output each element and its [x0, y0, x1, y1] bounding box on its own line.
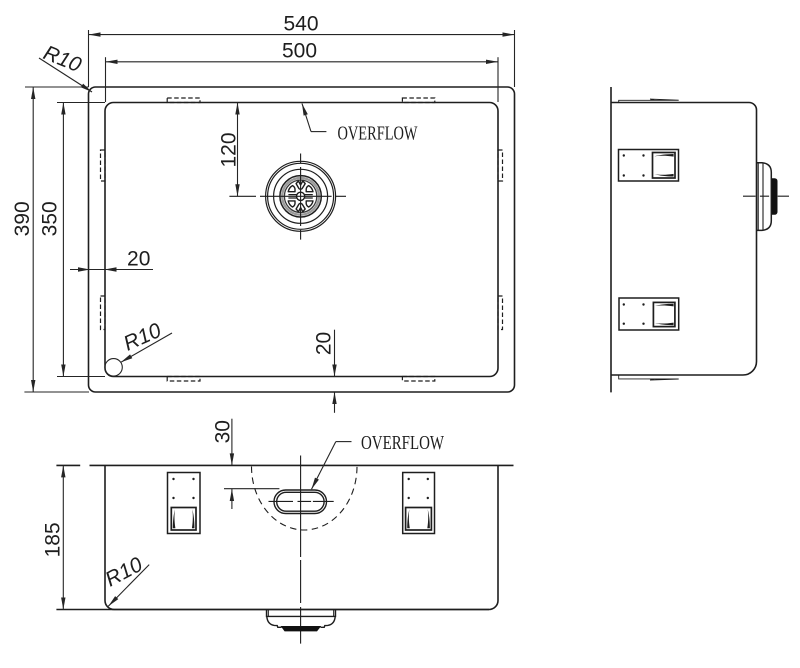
- svg-text:120: 120: [218, 132, 241, 167]
- svg-text:390: 390: [11, 201, 34, 236]
- svg-text:350: 350: [39, 201, 62, 236]
- svg-text:20: 20: [313, 332, 336, 355]
- svg-text:185: 185: [42, 522, 65, 557]
- svg-text:540: 540: [283, 13, 318, 36]
- svg-text:20: 20: [127, 248, 150, 271]
- svg-text:OVERFLOW: OVERFLOW: [338, 123, 418, 145]
- svg-text:30: 30: [212, 420, 235, 443]
- svg-text:R10: R10: [40, 41, 85, 77]
- svg-text:R10: R10: [102, 553, 147, 592]
- svg-text:500: 500: [282, 40, 317, 63]
- svg-text:OVERFLOW: OVERFLOW: [361, 432, 444, 454]
